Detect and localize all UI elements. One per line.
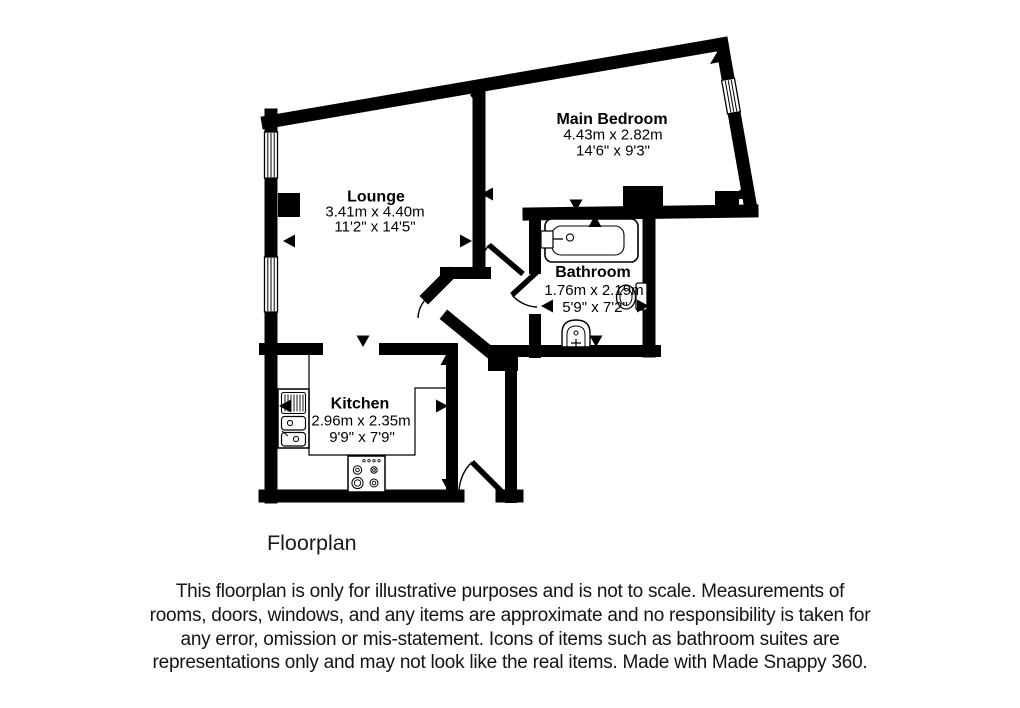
main-bedroom-size-metric: 4.43m x 2.82m bbox=[563, 127, 662, 144]
floorplan-page: Lounge 3.41m x 4.40m 11'2" x 14'5" Main … bbox=[0, 0, 1020, 708]
kitchen-sink-icon bbox=[278, 389, 309, 448]
kitchen-name: Kitchen bbox=[331, 396, 390, 413]
floorplan-title: Floorplan bbox=[267, 531, 357, 556]
arrow-lounge-left-icon bbox=[283, 235, 295, 248]
main-bedroom-size-imperial: 14'6" x 9'3" bbox=[576, 143, 650, 160]
door-bathroom bbox=[512, 272, 537, 307]
arrow-lounge-right-icon bbox=[460, 235, 472, 248]
room-label-kitchen: Kitchen 2.96m x 2.35m 9'9" x 7'9" bbox=[311, 396, 410, 447]
bedroom-pier bbox=[623, 186, 663, 213]
lounge-left-pier bbox=[278, 193, 300, 217]
window-lounge-upper bbox=[265, 132, 278, 178]
main-bedroom-name: Main Bedroom bbox=[556, 111, 667, 128]
wall-right-slanted bbox=[722, 44, 751, 209]
kitchen-size-imperial: 9'9" x 7'9" bbox=[329, 429, 395, 446]
lounge-size-imperial: 11'2" x 14'5" bbox=[334, 219, 415, 236]
arrow-lounge-down-icon bbox=[357, 336, 370, 348]
hob-icon bbox=[348, 456, 385, 492]
bathroom-name: Bathroom bbox=[555, 264, 631, 281]
room-label-lounge: Lounge 3.41m x 4.40m 11'2" x 14'5" bbox=[325, 189, 424, 236]
window-bedroom-right bbox=[722, 78, 741, 114]
bathroom-size-metric: 1.76m x 2.19m bbox=[544, 282, 643, 299]
door-entrance bbox=[459, 462, 503, 493]
wash-basin-icon bbox=[562, 320, 590, 347]
kitchen-size-metric: 2.96m x 2.35m bbox=[311, 413, 410, 430]
window-lounge-lower bbox=[265, 257, 278, 312]
bathroom-size-imperial: 5'9" x 7'2" bbox=[562, 299, 628, 316]
disclaimer-text: This floorplan is only for illustrative … bbox=[148, 580, 872, 675]
wall-lounge-diagonal bbox=[428, 275, 449, 296]
hall-junction-block bbox=[488, 345, 518, 371]
bedroom-right-step bbox=[715, 191, 739, 212]
arrow-bathroom-left-icon bbox=[541, 300, 553, 313]
room-label-main-bedroom: Main Bedroom 4.43m x 2.82m 14'6" x 9'3" bbox=[556, 111, 667, 160]
